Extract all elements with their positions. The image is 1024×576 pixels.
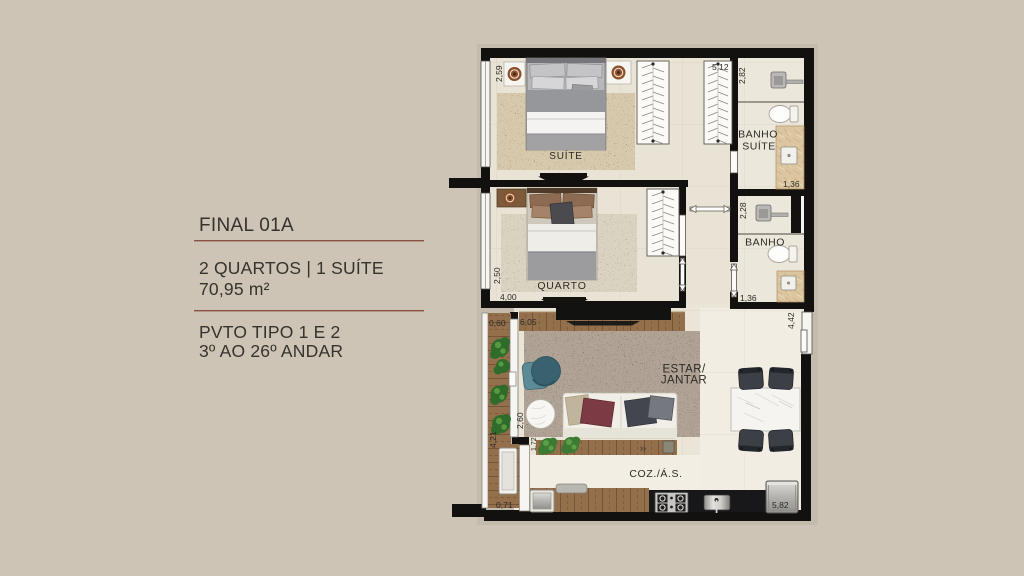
- svg-text:5,12: 5,12: [712, 62, 729, 72]
- svg-text:››: ››: [640, 443, 646, 453]
- svg-text:BANHO: BANHO: [745, 237, 785, 249]
- svg-text:BANHO: BANHO: [738, 129, 778, 141]
- svg-text:1,36: 1,36: [783, 179, 800, 189]
- svg-text:2,50: 2,50: [492, 267, 502, 284]
- svg-text:FINAL 01A: FINAL 01A: [199, 215, 294, 236]
- svg-text:2,82: 2,82: [737, 67, 747, 84]
- svg-text:1,72: 1,72: [531, 437, 538, 451]
- svg-text:6,05: 6,05: [520, 317, 537, 327]
- svg-text:2 QUARTOS | 1 SUÍTE: 2 QUARTOS | 1 SUÍTE: [199, 258, 384, 278]
- svg-text:0,60: 0,60: [489, 318, 506, 328]
- svg-text:SUÍTE: SUÍTE: [549, 149, 582, 162]
- svg-text:PVTO TIPO 1 E 2: PVTO TIPO 1 E 2: [199, 322, 340, 342]
- svg-text:JANTAR: JANTAR: [661, 375, 707, 387]
- svg-text:4,21: 4,21: [488, 431, 498, 448]
- svg-text:QUARTO: QUARTO: [537, 280, 586, 292]
- svg-text:2,28: 2,28: [738, 202, 748, 219]
- svg-text:5,82: 5,82: [772, 500, 789, 510]
- svg-text:COZ./Á.S.: COZ./Á.S.: [629, 467, 682, 480]
- svg-text:2,60: 2,60: [515, 412, 525, 429]
- svg-text:3º AO 26º ANDAR: 3º AO 26º ANDAR: [199, 341, 343, 361]
- svg-text:SUÍTE: SUÍTE: [742, 140, 775, 153]
- svg-text:1,36: 1,36: [740, 293, 757, 303]
- svg-text:70,95 m²: 70,95 m²: [199, 279, 270, 299]
- svg-text:0,71: 0,71: [496, 500, 513, 510]
- svg-text:4,42: 4,42: [786, 312, 796, 329]
- svg-text:4,00: 4,00: [500, 292, 517, 302]
- svg-text:2,59: 2,59: [494, 65, 504, 82]
